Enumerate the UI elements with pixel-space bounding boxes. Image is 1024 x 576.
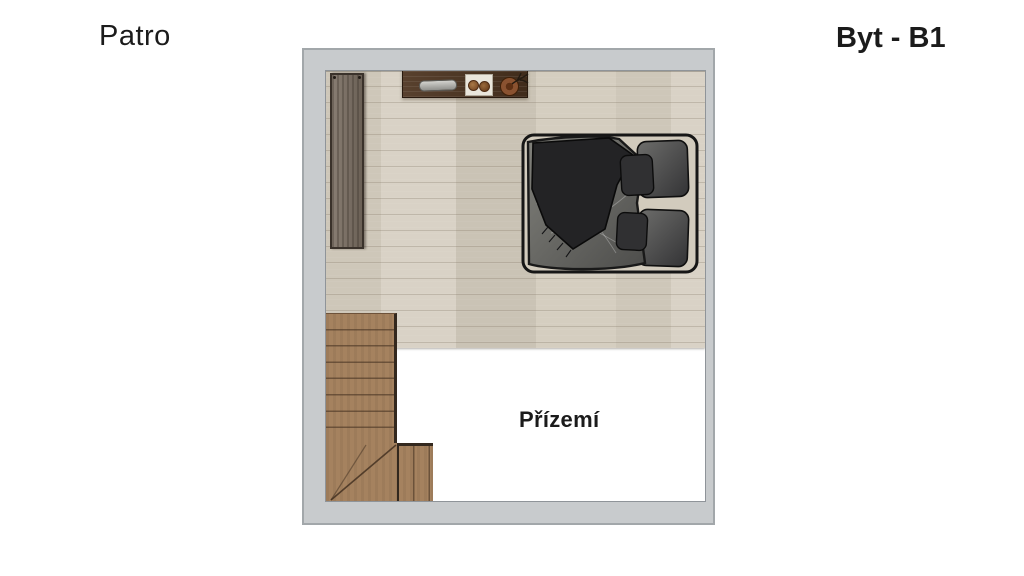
staircase-lower-treads [397,443,433,502]
bed-cushion [620,154,654,196]
shelf-decor-sculpture [419,79,457,91]
wardrobe [330,73,364,249]
shelf-decor-plate [479,81,490,92]
void-to-ground-floor-label: Přízemí [519,407,599,433]
shelf-decor-branch [511,71,529,89]
double-bed [521,133,699,274]
floorplan-page: Patro Byt - B1 [0,0,1024,576]
staircase-landing [326,443,433,502]
apartment-title: Byt - B1 [836,22,946,55]
bed-cushion [616,212,648,251]
wall-shelf [402,70,528,98]
staircase-flight [326,313,397,443]
floorplan-interior: Přízemí [325,70,706,502]
shelf-decor-tray [465,74,493,96]
floor-level-title: Patro [99,20,171,53]
wardrobe-hinge-icon [333,76,336,79]
floorplan-outer-wall: Přízemí [302,48,715,525]
shelf-decor-plate [468,80,479,91]
wardrobe-hinge-icon [358,76,361,79]
